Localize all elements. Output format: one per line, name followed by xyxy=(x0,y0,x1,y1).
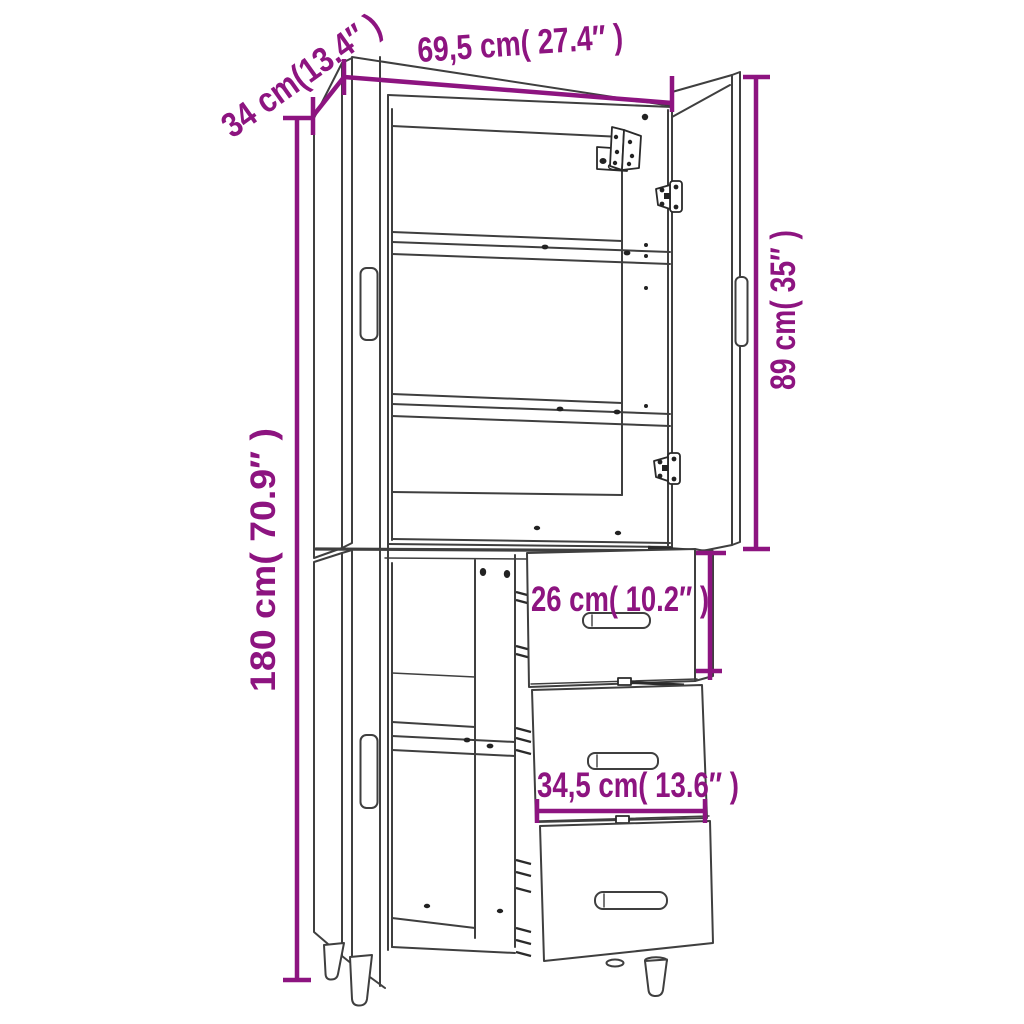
upper-bottom-panel xyxy=(388,492,672,547)
upper-right-door[interactable] xyxy=(672,72,748,557)
total-height-label: 180 cm( 70.9″ ) xyxy=(244,428,283,692)
drawer-bottom-handle[interactable] xyxy=(595,892,667,909)
cabinet-diagram-svg: 180 cm( 70.9″ ) 34 cm(13.4″ ) 69,5 cm( 2… xyxy=(0,0,1024,1024)
leg-front-right xyxy=(645,960,667,997)
back-panel-seam xyxy=(392,673,475,677)
lower-left-door[interactable] xyxy=(314,550,385,988)
drawer-height-label: 26 cm( 10.2″ ) xyxy=(531,580,709,619)
drawer-back-clip xyxy=(616,816,629,823)
lower-cabinet-interior xyxy=(392,555,531,956)
door-hinge-top xyxy=(656,181,682,212)
drawer-width-label: 34,5 cm( 13.6″ ) xyxy=(537,766,739,805)
door-hinge-bottom xyxy=(654,453,680,484)
upper-left-door-handle[interactable] xyxy=(361,268,378,340)
upper-shelf-2 xyxy=(392,394,670,426)
interior-ceiling-back-line xyxy=(392,126,622,137)
lower-left-door-handle[interactable] xyxy=(361,735,378,808)
upper-right-door-face[interactable] xyxy=(672,75,732,557)
upper-left-door-face[interactable] xyxy=(314,63,342,558)
shelf-pin-hole xyxy=(644,286,648,290)
upper-shelf-1 xyxy=(392,232,670,264)
depth-label: 34 cm(13.4″ ) xyxy=(214,6,388,146)
dimension-door-height: 89 cm( 35″ ) xyxy=(743,77,803,549)
leg-front-left xyxy=(350,955,372,1006)
lower-bottom-panel xyxy=(392,904,515,953)
dimension-width: 69,5 cm( 27.4″ ) xyxy=(344,17,672,112)
top-screw-hole xyxy=(642,114,648,120)
furniture-dimension-diagram: 180 cm( 70.9″ ) 34 cm(13.4″ ) 69,5 cm( 2… xyxy=(0,0,1024,1024)
shelf-pin-hole xyxy=(644,254,648,258)
lower-shelf xyxy=(392,722,515,756)
upper-right-door-handle[interactable] xyxy=(736,277,748,346)
drawer-back-clip xyxy=(618,678,631,685)
wall-mount-bracket xyxy=(597,127,641,171)
width-label: 69,5 cm( 27.4″ ) xyxy=(416,17,624,70)
door-height-label: 89 cm( 35″ ) xyxy=(764,230,803,390)
drawer-bottom[interactable] xyxy=(539,816,713,967)
leg-back-left xyxy=(324,943,344,980)
lower-left-door-edge xyxy=(342,550,352,964)
upper-left-door[interactable] xyxy=(314,58,378,558)
dimension-total-height: 180 cm( 70.9″ ) xyxy=(244,118,311,980)
lower-left-door-face[interactable] xyxy=(314,553,342,956)
upper-left-door-edge xyxy=(342,58,352,548)
dimension-depth: 34 cm(13.4″ ) xyxy=(214,6,388,146)
drawer-leg-mount xyxy=(607,960,624,967)
